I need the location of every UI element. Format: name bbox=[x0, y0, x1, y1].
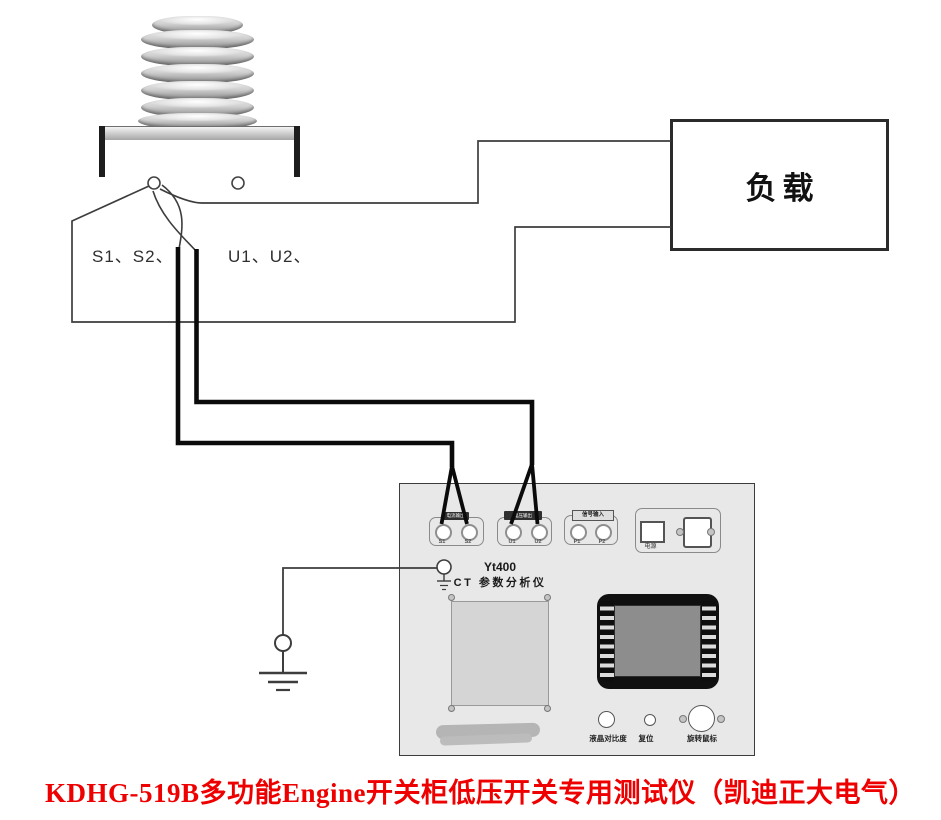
mouse-screw-left bbox=[679, 715, 687, 723]
instrument-name: CT 参数分析仪 bbox=[440, 574, 560, 590]
earth-ground-icon bbox=[259, 673, 307, 690]
ct-bushing-insulator bbox=[138, 14, 257, 132]
mounting-bracket-right bbox=[294, 126, 300, 177]
keypad-screw bbox=[448, 594, 455, 601]
socket-screw-left bbox=[676, 528, 684, 536]
diagram-caption: KDHG-519B多功能Engine开关柜低压开关专用测试仪（凯迪正大电气） bbox=[45, 771, 916, 810]
lcd-screen bbox=[614, 605, 701, 677]
ground-lug bbox=[275, 635, 291, 651]
power-switch-label: 电源 bbox=[634, 541, 667, 550]
contrast-knob bbox=[598, 711, 615, 728]
socket-screw-right bbox=[707, 528, 715, 536]
signal-input-strip-label: 信号输入 bbox=[572, 510, 614, 521]
wire-s-lead bbox=[178, 247, 452, 467]
load-box: 负载 bbox=[670, 119, 889, 251]
ct-analyzer-panel: 电流输出 S1 S2 电压输出 U1 U2 信号输入 P1 P2 电源 Yt40… bbox=[399, 483, 755, 756]
power-switch bbox=[640, 521, 665, 543]
jack-u2-label: U2 bbox=[527, 539, 549, 545]
vent-slats-left bbox=[600, 601, 614, 682]
bushing-terminal-post-right bbox=[232, 177, 244, 189]
mouse-screw-right bbox=[717, 715, 725, 723]
lcd-display-bezel bbox=[597, 594, 719, 689]
keypad-area bbox=[451, 601, 549, 706]
reset-label: 复位 bbox=[626, 733, 666, 744]
jack-p2-label: P2 bbox=[591, 539, 613, 545]
jack-s2-label: S2 bbox=[457, 539, 479, 545]
ct-secondary-terminals-label: S1、S2、 bbox=[92, 242, 174, 267]
mounting-bracket-left bbox=[99, 126, 105, 177]
jack-u1-label: U1 bbox=[501, 539, 523, 545]
bushing-mounting-plate bbox=[102, 126, 298, 140]
vent-slats-right bbox=[702, 601, 716, 682]
keypad-screw bbox=[544, 594, 551, 601]
voltage-strip-label: 电压输出 bbox=[504, 511, 542, 520]
load-box-label: 负载 bbox=[740, 163, 820, 208]
keypad-screw bbox=[448, 705, 455, 712]
wire-lead-curve-a bbox=[162, 185, 182, 249]
voltage-terminals-label: U1、U2、 bbox=[228, 242, 311, 267]
wire-u-lead bbox=[197, 249, 533, 465]
keypad-screw bbox=[544, 705, 551, 712]
bushing-terminal-post-left bbox=[148, 177, 160, 189]
rotary-mouse-label: 旋转鼠标 bbox=[670, 733, 734, 744]
wire-load-top bbox=[160, 141, 671, 203]
jack-p1-label: P1 bbox=[566, 539, 588, 545]
instrument-model: Yt400 bbox=[470, 560, 530, 574]
diagram-canvas: S1、S2、 U1、U2、 负载 电流输出 S1 S2 电压输出 U1 U2 信… bbox=[0, 0, 941, 820]
current-output-strip-label: 电流输出 bbox=[442, 512, 469, 520]
blurred-brand-smudge bbox=[440, 733, 532, 745]
reset-button bbox=[644, 714, 656, 726]
jack-s1-label: S1 bbox=[431, 539, 453, 545]
rotary-mouse-knob bbox=[688, 705, 715, 732]
